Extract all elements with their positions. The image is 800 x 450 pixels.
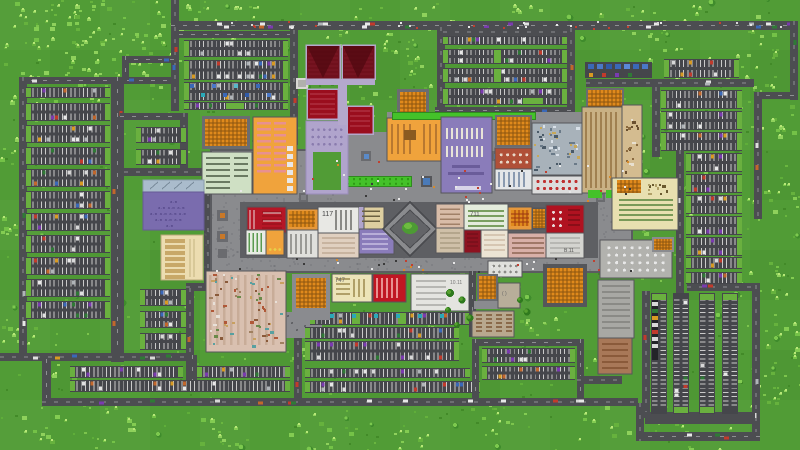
svg-text:B.11: B.11 [564, 248, 574, 254]
svg-text:747: 747 [335, 278, 346, 284]
svg-text:711: 711 [470, 212, 480, 218]
svg-text:a.m a.m a.m: a.m a.m a.m [158, 207, 185, 211]
svg-text:117: 117 [322, 211, 333, 218]
svg-text:a.m a.m a.m: a.m a.m a.m [155, 219, 182, 223]
svg-text:a.m: a.m [166, 225, 174, 229]
svg-text:10.11: 10.11 [450, 280, 462, 286]
svg-text:( ): ( ) [502, 291, 507, 297]
svg-text:a.m a.m a.m a.m: a.m a.m a.m a.m [150, 213, 187, 217]
svg-text:a.m: a.m [170, 201, 178, 205]
